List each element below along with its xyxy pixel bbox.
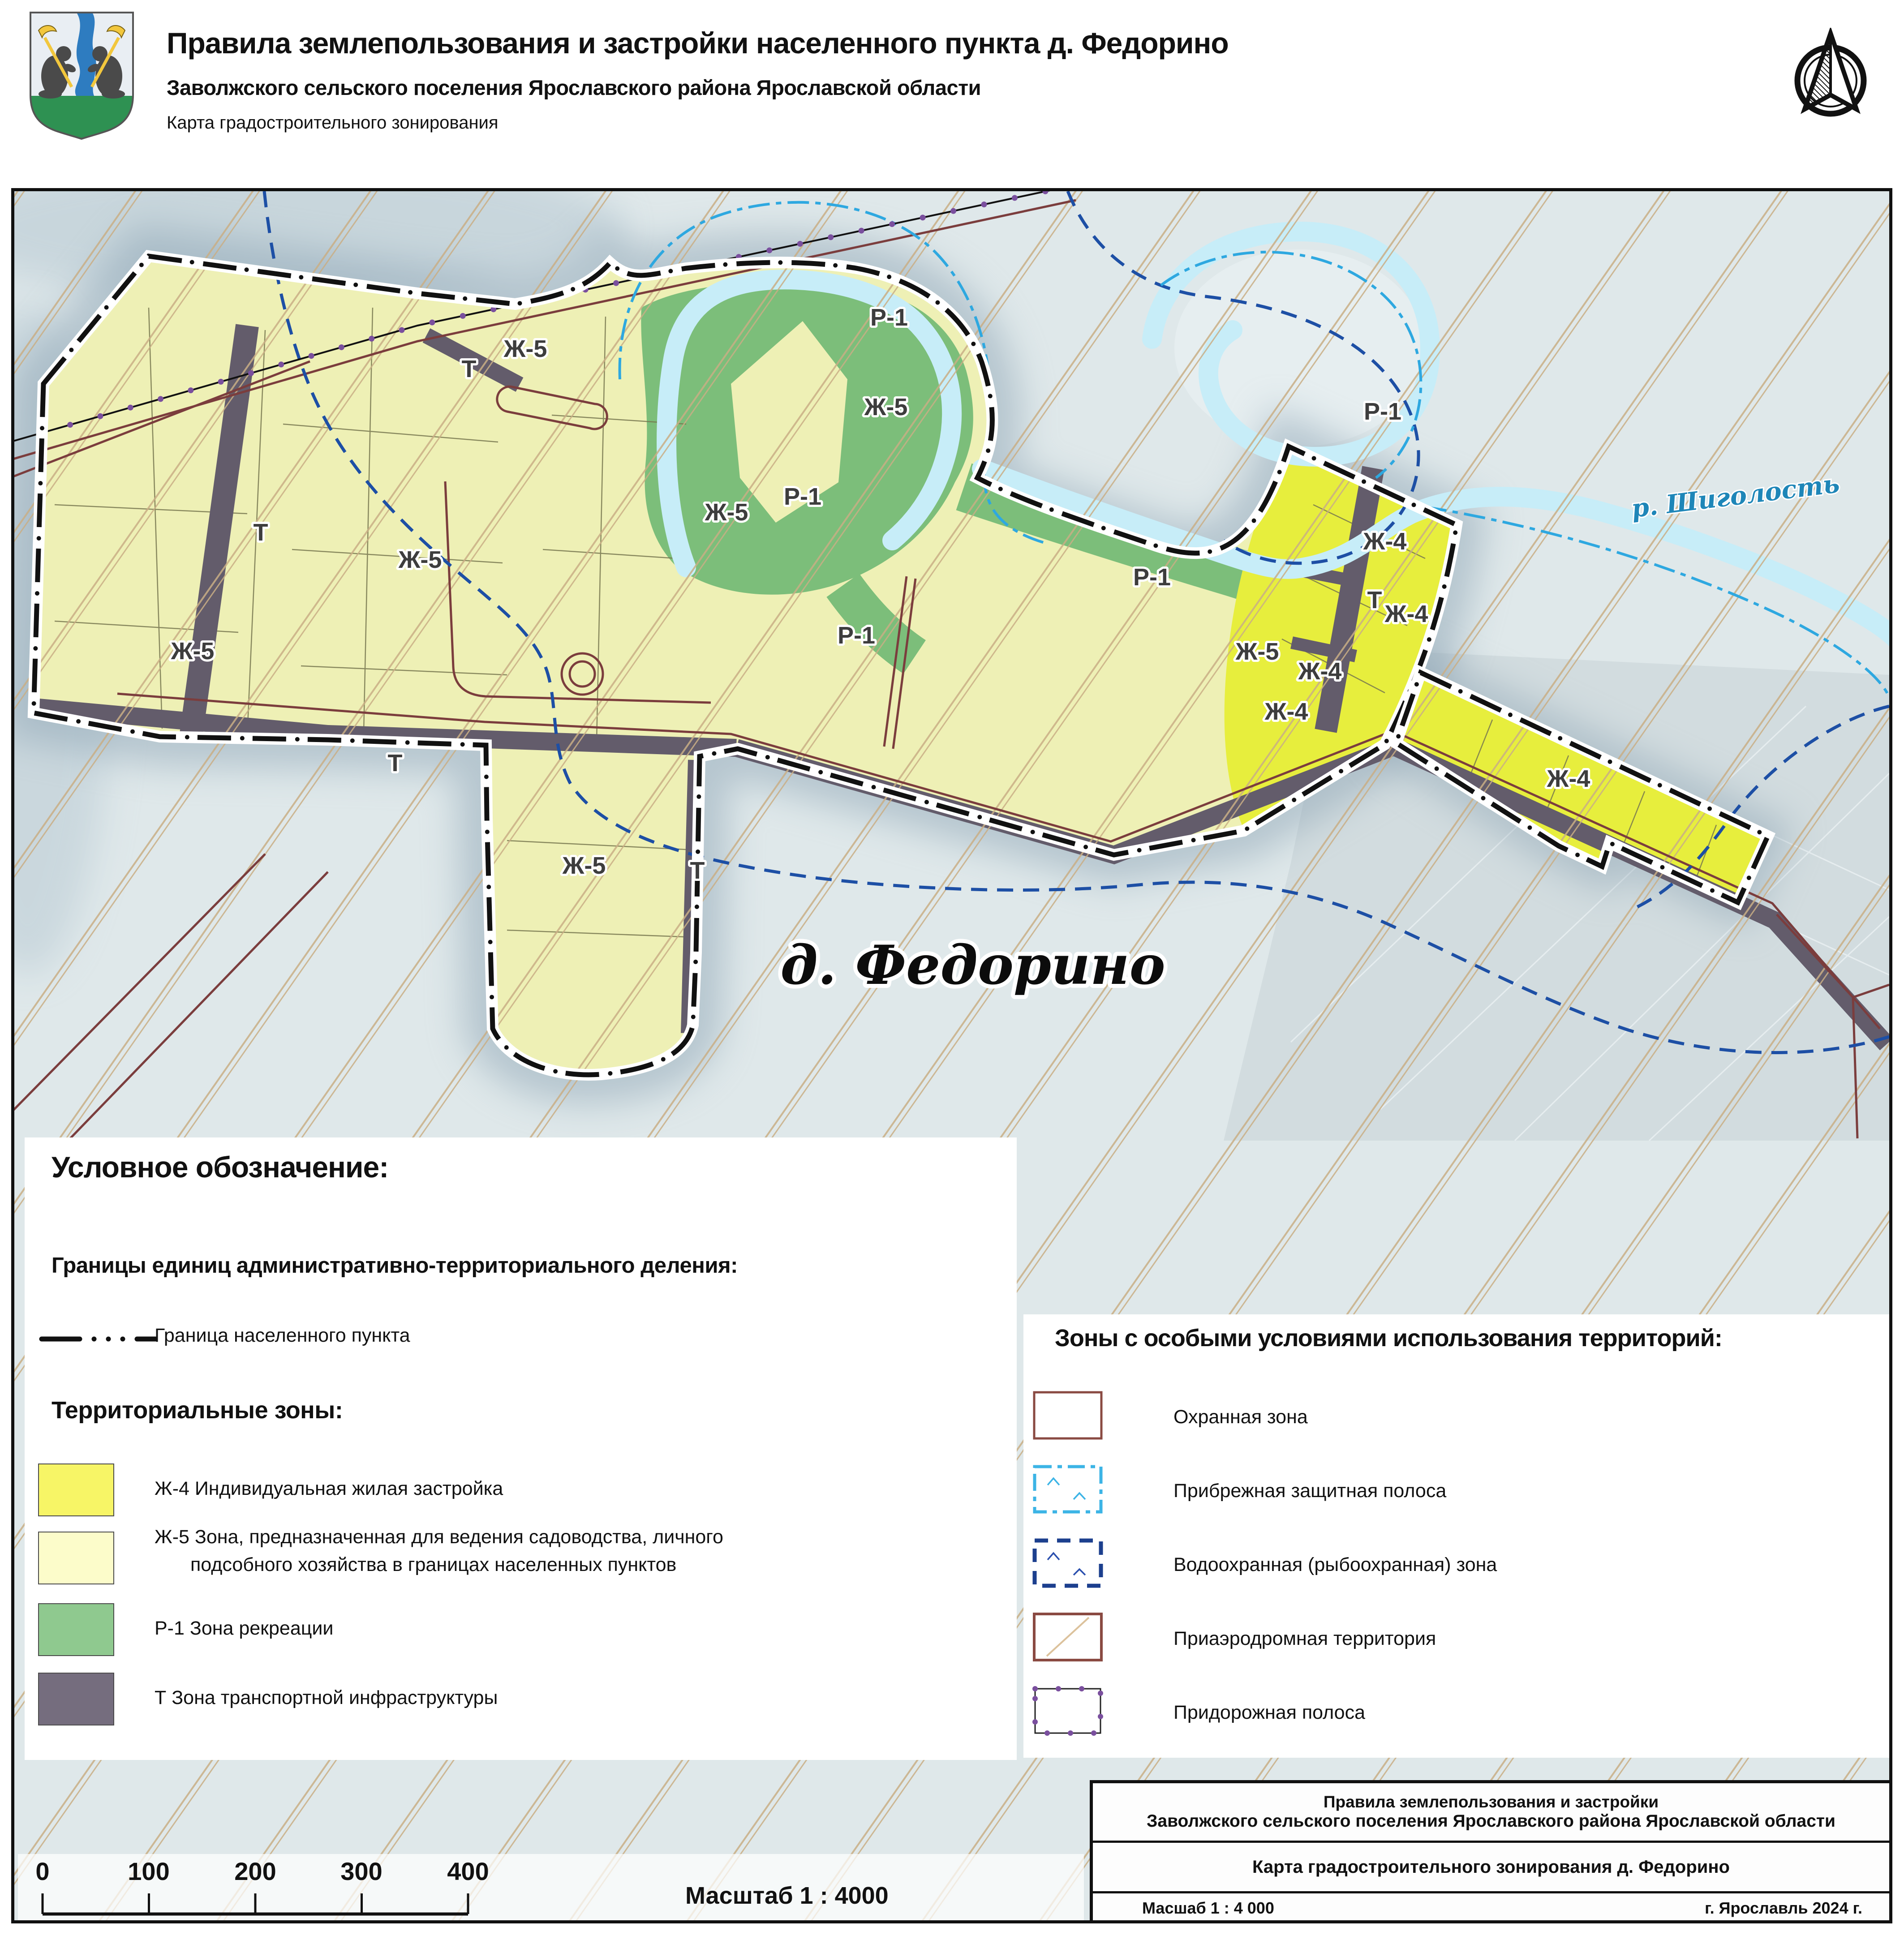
zone-item-label-t: Т Зона транспортной инфраструктуры [155, 1687, 498, 1709]
page: Правила землепользования и застройки нас… [0, 0, 1904, 1957]
vodookhrannaya-symbol [1032, 1538, 1104, 1588]
zone-label: Ж-4 [1264, 698, 1308, 725]
legend-title: Условное обозначение: [52, 1150, 388, 1184]
north-arrow-icon [1785, 28, 1877, 122]
title-block-row3: Масшаб 1 : 4 000 г. Ярославль 2024 г. [1093, 1893, 1889, 1923]
zone-label: Ж-5 [503, 335, 547, 362]
priaerodromnaya-label: Приаэродромная территория [1173, 1628, 1436, 1650]
zone-label: Ж-4 [1298, 658, 1342, 685]
boundary-line-symbol [38, 1332, 159, 1346]
title-block: Правила землепользования и застройки Зав… [1090, 1780, 1892, 1923]
scale-bar: 0 100 200 300 400 Масштаб 1 : 4000 [18, 1854, 1084, 1920]
legend-zones-heading: Территориальные зоны: [52, 1396, 343, 1424]
zone-label: Р-1 [784, 483, 821, 510]
zone-label: Т [254, 519, 268, 546]
zone-label: Ж-4 [1384, 601, 1428, 627]
zone-label: Ж-4 [1547, 765, 1590, 792]
zone-label: Ж-5 [1235, 638, 1279, 665]
zone-label: Ж-5 [864, 394, 908, 421]
legend-special-title: Зоны с особыми условиями использования т… [1055, 1324, 1722, 1352]
swatch-zh5 [38, 1532, 114, 1584]
page-subtitle2: Карта градостроительного зонирования [167, 113, 499, 133]
zone-label: Т [1367, 587, 1382, 614]
zone-item-label-zh5: Ж-5 Зона, предназначенная для ведения са… [155, 1526, 723, 1548]
okhrannaya-label: Охранная зона [1173, 1406, 1308, 1428]
zone-item-label-r1: Р-1 Зона рекреации [155, 1618, 333, 1639]
priaerodromnaya-symbol [1032, 1612, 1104, 1662]
pribrezhnaya-label: Прибрежная защитная полоса [1173, 1480, 1446, 1502]
scale-bar-graphic [31, 1889, 524, 1918]
scale-caption: Масштаб 1 : 4000 [685, 1882, 889, 1910]
zone-label: Ж-5 [398, 546, 442, 573]
title-block-doc-name2: Заволжского сельского поселения Ярославс… [1147, 1811, 1835, 1831]
zone-label: Р-1 [1133, 564, 1171, 591]
title-block-scale: Масшаб 1 : 4 000 [1142, 1899, 1274, 1918]
zone-label: Ж-5 [705, 499, 748, 526]
pridorozhnaya-symbol [1032, 1686, 1104, 1736]
scale-tick: 200 [224, 1857, 287, 1886]
swatch-r1 [38, 1603, 114, 1656]
page-title: Правила землепользования и застройки нас… [167, 26, 1229, 60]
okhrannaya-symbol [1032, 1390, 1104, 1441]
zone-label: Ж-5 [562, 852, 606, 879]
vodookhrannaya-label: Водоохранная (рыбоохранная) зона [1173, 1554, 1497, 1576]
swatch-t [38, 1673, 114, 1725]
legend-main: Условное обозначение: Границы единиц адм… [25, 1137, 1017, 1760]
zone-label: Т [690, 857, 705, 884]
zone-label: Т [462, 356, 477, 382]
scale-tick: 300 [330, 1857, 393, 1886]
zone-label: Ж-5 [171, 638, 215, 665]
legend-special-zones: Зоны с особыми условиями использования т… [1023, 1314, 1889, 1758]
title-block-doc-name: Правила землепользования и застройки [1324, 1793, 1659, 1811]
scale-tick: 400 [437, 1857, 499, 1886]
zone-label: Т [388, 750, 403, 777]
title-block-row1: Правила землепользования и застройки Зав… [1093, 1783, 1889, 1843]
scale-tick: 100 [117, 1857, 180, 1886]
zone-item-label-zh4: Ж-4 Индивидуальная жилая застройка [155, 1478, 503, 1500]
page-subtitle: Заволжского сельского поселения Ярославс… [167, 75, 981, 100]
pridorozhnaya-label: Придорожная полоса [1173, 1702, 1365, 1724]
title-block-city-year: г. Ярославль 2024 г. [1705, 1899, 1862, 1918]
zone-item-label-zh5-line2: подсобного хозяйства в границах населенн… [190, 1554, 676, 1576]
zone-label: Р-1 [838, 622, 875, 649]
legend-boundaries-heading: Границы единиц административно-территори… [52, 1253, 738, 1278]
zone-label: Р-1 [1364, 398, 1401, 425]
scale-tick: 0 [11, 1857, 74, 1886]
title-block-row2: Карта градостроительного зонирования д. … [1093, 1843, 1889, 1893]
title-block-map-name: Карта градостроительного зонирования д. … [1252, 1857, 1730, 1877]
boundary-item-label: Граница населенного пункта [155, 1325, 410, 1347]
pribrezhnaya-symbol [1032, 1464, 1104, 1515]
coat-of-arms-icon [27, 10, 137, 141]
zone-label: Ж-4 [1363, 528, 1407, 555]
zone-label: Р-1 [870, 304, 908, 331]
settlement-name-label: д. Федорино [780, 934, 1165, 997]
swatch-zh4 [38, 1463, 114, 1516]
